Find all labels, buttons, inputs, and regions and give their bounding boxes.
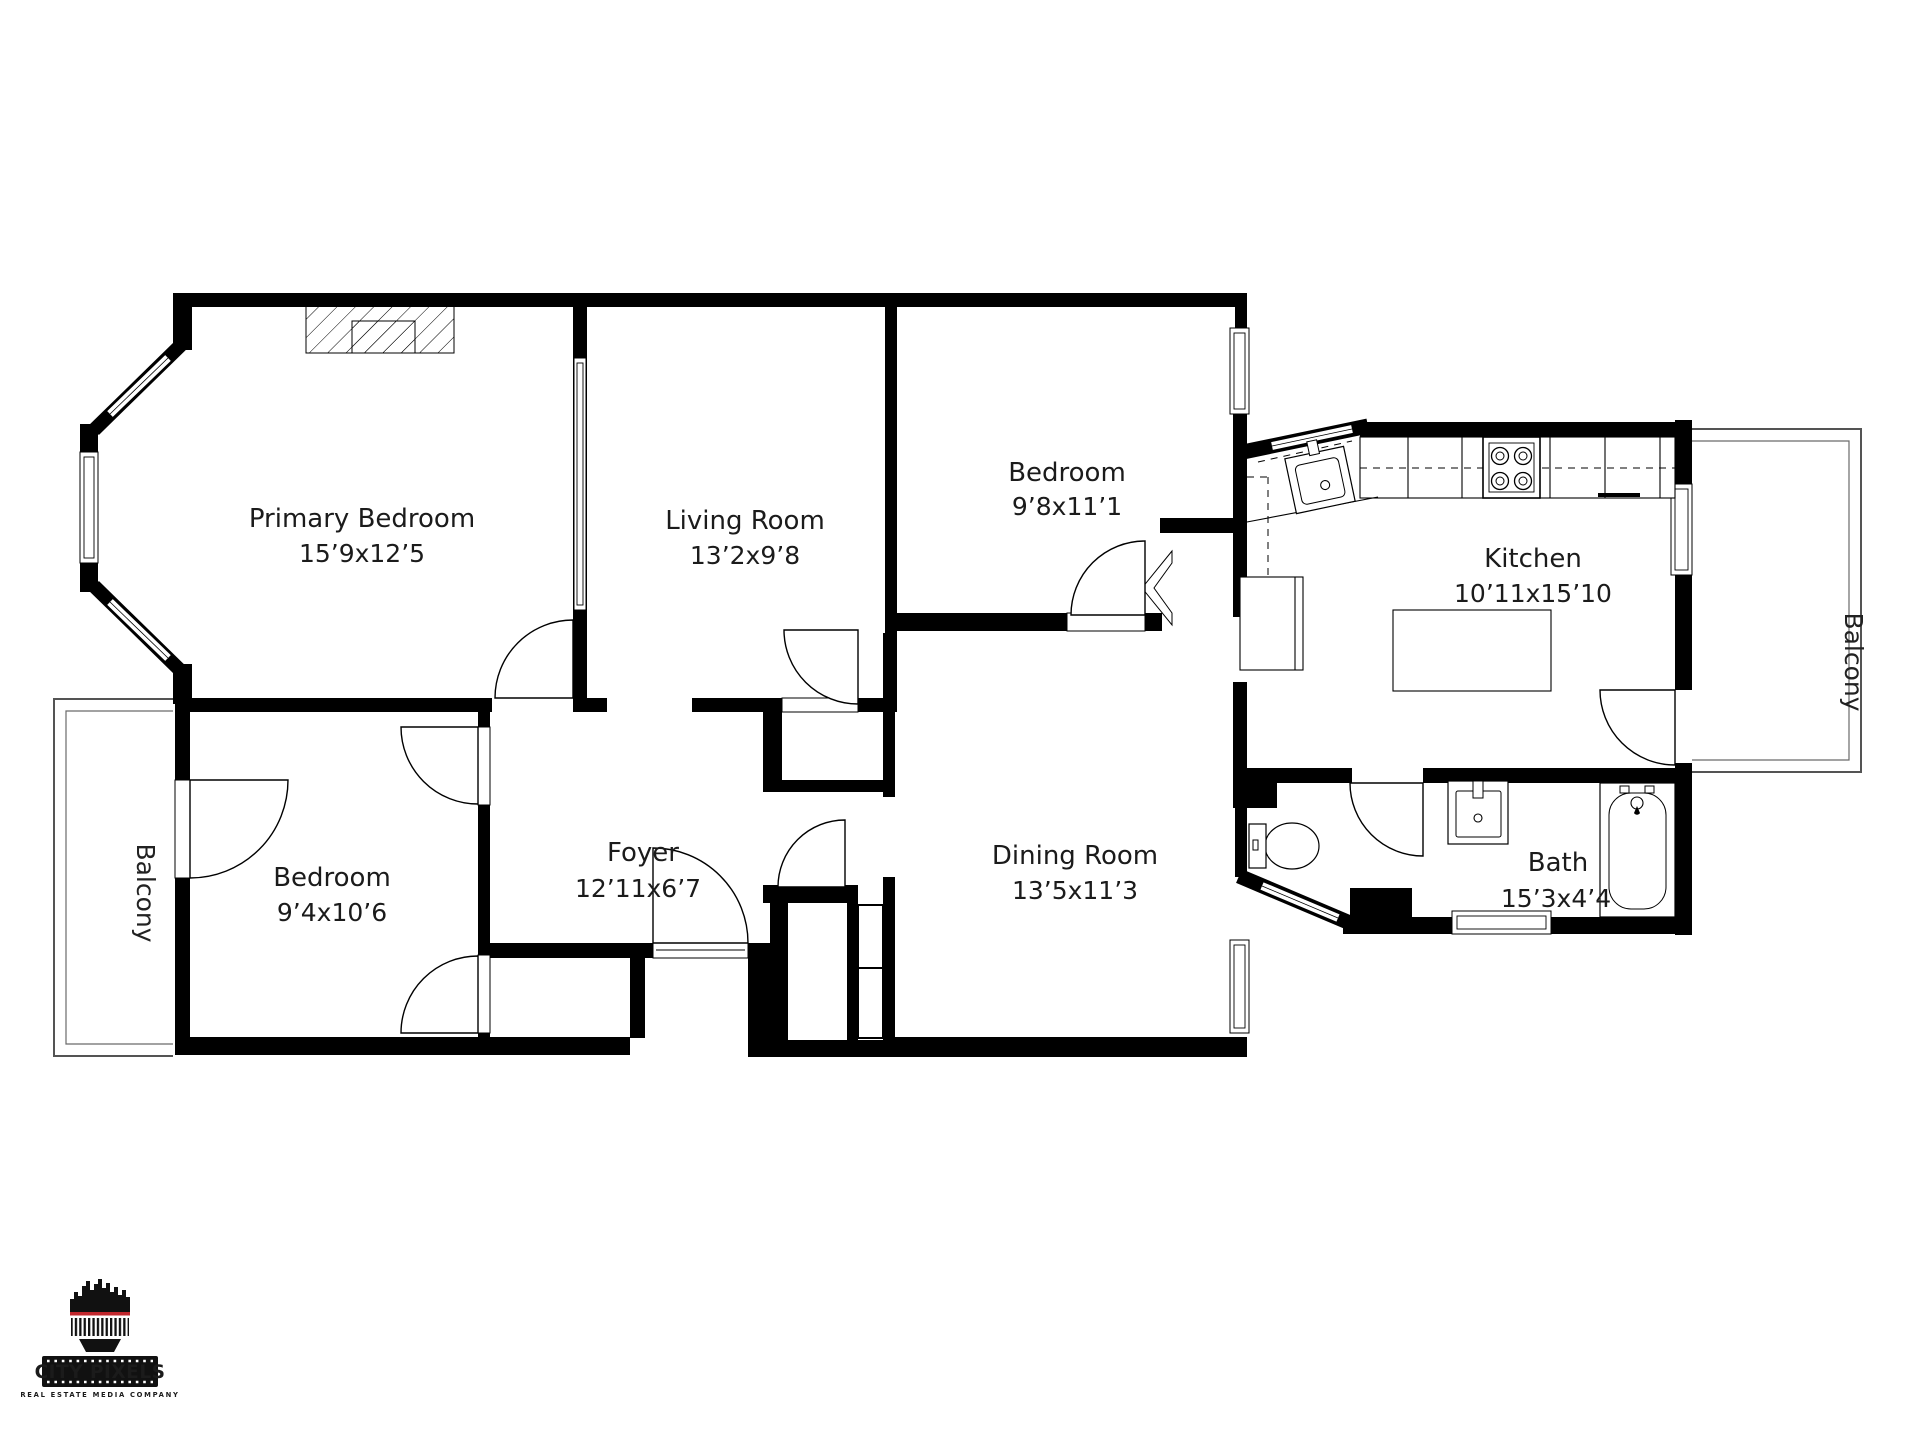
balcony-left-label: Balcony	[131, 843, 160, 942]
interior-window	[574, 358, 586, 610]
room-dims: 15’9x12’5	[299, 539, 425, 568]
room-dims: 15’3x4’4	[1501, 884, 1611, 913]
window-pane	[1262, 886, 1338, 918]
wall-segment	[175, 878, 190, 1052]
wall-segment	[770, 903, 788, 1040]
wall-segment	[1675, 420, 1692, 486]
balcony-right-outline	[1692, 429, 1861, 772]
wall-segment	[487, 943, 653, 958]
balcony-right: Balcony	[1692, 429, 1868, 772]
door-kitchen-balcony	[1600, 690, 1675, 765]
wall-segment	[1145, 613, 1162, 631]
kitchen-fixtures	[1240, 435, 1675, 691]
wall-segment	[883, 877, 895, 1040]
sink-faucet	[1307, 440, 1320, 456]
door-bedroom-lower-closet	[401, 956, 478, 1033]
door-primary-bedroom	[495, 620, 573, 698]
room-name: Foyer	[607, 838, 679, 868]
entry-threshold	[653, 943, 748, 958]
sink-body	[1285, 446, 1355, 513]
room-bedroom-lower: Bedroom 9’4x10’6	[273, 863, 391, 927]
room-name: Dining Room	[992, 841, 1158, 871]
room-name: Bath	[1528, 848, 1588, 878]
door-sill	[478, 955, 490, 1033]
door-foyer-dining	[778, 820, 845, 887]
wall-segment	[883, 633, 895, 797]
bay-window-line	[110, 358, 168, 414]
door-sills	[175, 613, 1145, 1033]
room-dims: 12’11x6’7	[575, 874, 701, 903]
door-sill	[478, 727, 490, 805]
wall-segment	[175, 1037, 630, 1055]
hatched-closet	[306, 306, 454, 353]
closet	[858, 905, 883, 968]
floor-plan-page: Balcony Balcony	[0, 0, 1920, 1440]
room-name: Bedroom	[273, 863, 391, 893]
wall-segment	[573, 698, 607, 712]
room-dims: 13’5x11’3	[1012, 876, 1138, 905]
wall-segment	[1550, 917, 1692, 934]
stove-icon	[1483, 437, 1540, 498]
room-name: Primary Bedroom	[249, 504, 475, 534]
door-sill	[175, 780, 190, 878]
wall-segment	[1233, 682, 1247, 768]
logo-wordmark: CITY PIXELS	[35, 1362, 166, 1383]
door-bedroom-top	[1071, 541, 1145, 615]
room-dims: 13’2x9’8	[690, 541, 800, 570]
door-living-room-closet	[784, 630, 858, 704]
wall-segment	[748, 943, 770, 1057]
wall-segment	[1160, 518, 1233, 533]
floor-plan-canvas: Balcony Balcony	[0, 0, 1920, 1440]
wall-segment	[763, 780, 883, 792]
logo-lens-base-icon	[79, 1339, 121, 1352]
burner	[1492, 448, 1509, 465]
tub-handle	[1620, 786, 1629, 793]
balcony-right-inner-line	[1692, 441, 1849, 760]
logo-lens-barcode-icon	[71, 1318, 129, 1336]
wall-segment	[1675, 574, 1692, 690]
logo-skyline-icon	[70, 1279, 130, 1312]
burner	[1492, 473, 1509, 490]
toilet-icon	[1249, 823, 1319, 869]
wall-segment	[478, 805, 490, 957]
burner	[1515, 473, 1532, 490]
wall-segment	[1235, 783, 1247, 877]
window	[1452, 911, 1551, 934]
bathtub-icon	[1600, 783, 1675, 917]
wall-segment	[1343, 917, 1453, 934]
wall-segment	[892, 1037, 1247, 1055]
sink-drain	[1474, 814, 1482, 822]
room-primary-bedroom: Primary Bedroom 15’9x12’5	[249, 504, 475, 568]
stove-body	[1483, 437, 1540, 498]
wall-segment	[80, 562, 98, 592]
city-pixels-logo: CITY PIXELS REAL ESTATE MEDIA COMPANY	[20, 1279, 179, 1399]
wall-segment	[478, 1033, 490, 1041]
wall-segment	[80, 424, 98, 454]
logo-red-stripe	[70, 1312, 130, 1316]
toilet-flush-button	[1253, 840, 1258, 850]
room-kitchen: Kitchen 10’11x15’10	[1454, 544, 1612, 608]
room-name: Living Room	[665, 506, 825, 536]
window	[80, 452, 98, 563]
door-bedroom-lower-hall	[401, 727, 478, 804]
room-living-room: Living Room 13’2x9’8	[665, 506, 825, 570]
wall-segment	[1360, 422, 1692, 437]
kitchen-tall-cabinet	[1240, 577, 1303, 670]
room-bedroom-top: Bedroom 9’8x11’1	[1008, 458, 1126, 521]
balcony-left: Balcony	[54, 699, 173, 1056]
burner	[1515, 448, 1532, 465]
closet	[858, 968, 883, 1038]
door-bath	[1350, 783, 1423, 856]
bath-sink-icon	[1448, 781, 1508, 844]
appliance-handle	[1598, 493, 1640, 497]
wall-segment	[1350, 888, 1412, 918]
wall-segment	[1233, 768, 1352, 783]
wall-segment	[1235, 306, 1247, 330]
room-labels: Primary Bedroom 15’9x12’5 Living Room 13…	[249, 458, 1612, 927]
wall-segment	[897, 613, 1067, 631]
window	[1230, 940, 1249, 1033]
toilet-bowl	[1265, 823, 1319, 869]
window	[1230, 328, 1249, 414]
room-bath: Bath 15’3x4’4	[1501, 848, 1611, 913]
room-dining-room: Dining Room 13’5x11’3	[992, 841, 1158, 905]
logo-tagline: REAL ESTATE MEDIA COMPANY	[20, 1391, 179, 1399]
balcony-right-label: Balcony	[1839, 612, 1868, 711]
hatched-area-inner	[352, 321, 415, 353]
wall-segment	[847, 903, 858, 1040]
tub-handle	[1645, 786, 1654, 793]
bay-window-line	[110, 602, 168, 658]
sink-faucet	[1473, 781, 1483, 798]
wall-segment	[1675, 763, 1692, 935]
room-dims: 10’11x15’10	[1454, 579, 1612, 608]
room-dims: 9’8x11’1	[1012, 492, 1122, 521]
wall-segment	[175, 698, 492, 712]
wall-segment	[763, 698, 782, 792]
wall-segment	[175, 293, 1247, 307]
room-name: Bedroom	[1008, 458, 1126, 488]
room-dims: 9’4x10’6	[277, 898, 387, 927]
room-name: Kitchen	[1484, 544, 1582, 574]
kitchen-island	[1393, 610, 1551, 691]
